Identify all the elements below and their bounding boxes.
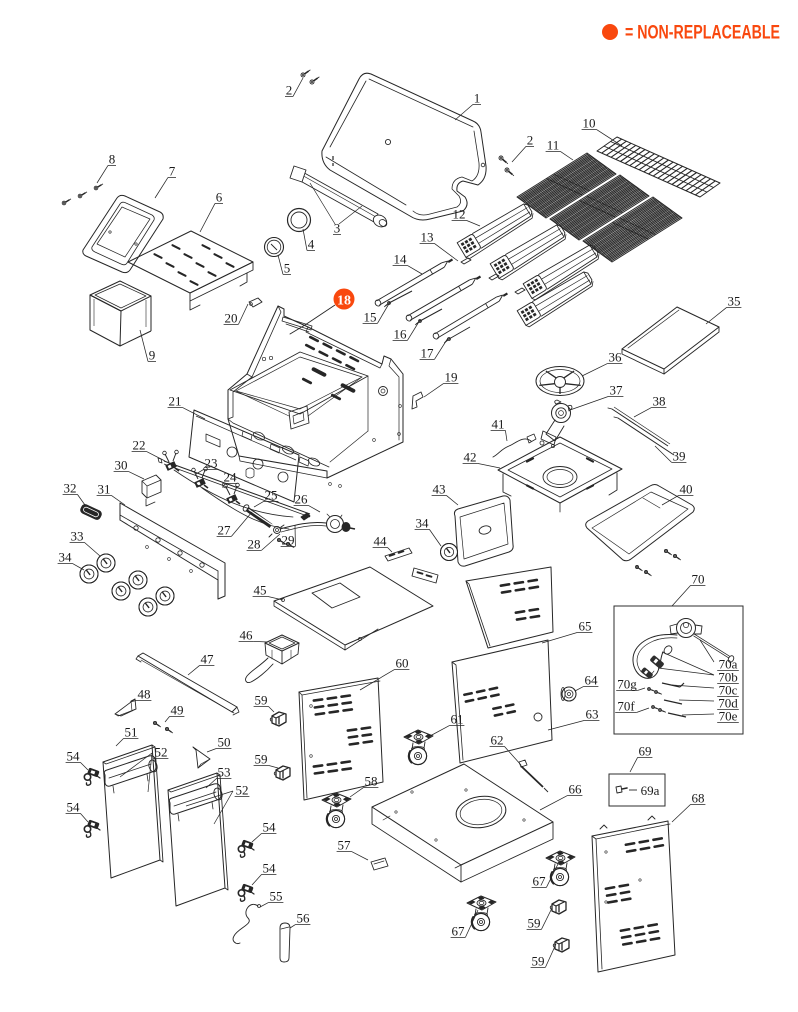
svg-text:4: 4 (308, 237, 315, 252)
svg-text:41: 41 (492, 417, 505, 432)
svg-text:34: 34 (59, 550, 73, 565)
svg-text:38: 38 (653, 394, 666, 409)
svg-text:34: 34 (416, 516, 430, 531)
svg-text:23: 23 (205, 456, 218, 471)
svg-text:59: 59 (528, 916, 541, 931)
svg-text:70f: 70f (617, 699, 635, 714)
svg-text:52: 52 (236, 783, 249, 798)
svg-text:17: 17 (421, 346, 435, 361)
svg-text:64: 64 (585, 673, 599, 688)
svg-text:67: 67 (533, 874, 547, 889)
svg-text:59: 59 (255, 752, 268, 767)
svg-text:32: 32 (64, 481, 77, 496)
svg-text:63: 63 (586, 707, 599, 722)
svg-text:57: 57 (338, 838, 352, 853)
svg-text:5: 5 (284, 261, 291, 276)
svg-text:66: 66 (569, 782, 583, 797)
svg-text:59: 59 (255, 693, 268, 708)
svg-text:58: 58 (365, 774, 378, 789)
svg-text:19: 19 (445, 370, 458, 385)
svg-text:53: 53 (218, 765, 231, 780)
svg-text:59: 59 (532, 954, 545, 969)
svg-text:50: 50 (218, 735, 231, 750)
svg-text:70: 70 (692, 572, 705, 587)
svg-text:24: 24 (224, 470, 238, 485)
svg-text:3: 3 (334, 221, 341, 236)
svg-text:70g: 70g (617, 677, 637, 692)
svg-text:11: 11 (547, 138, 560, 153)
svg-text:55: 55 (270, 889, 283, 904)
svg-text:36: 36 (609, 350, 623, 365)
svg-text:21: 21 (169, 394, 182, 409)
svg-text:52: 52 (155, 745, 168, 760)
svg-text:69a: 69a (641, 783, 660, 798)
svg-text:9: 9 (149, 348, 156, 363)
svg-text:47: 47 (201, 652, 215, 667)
svg-text:48: 48 (138, 687, 151, 702)
svg-text:26: 26 (295, 492, 309, 507)
svg-text:8: 8 (109, 152, 116, 167)
svg-text:61: 61 (451, 712, 464, 727)
svg-text:65: 65 (579, 619, 592, 634)
svg-text:18: 18 (337, 294, 351, 309)
svg-text:45: 45 (254, 583, 267, 598)
svg-text:27: 27 (218, 523, 232, 538)
svg-text:2: 2 (527, 133, 534, 148)
svg-text:22: 22 (133, 438, 146, 453)
svg-text:62: 62 (491, 733, 504, 748)
svg-text:33: 33 (71, 529, 84, 544)
svg-text:13: 13 (421, 230, 434, 245)
svg-text:54: 54 (263, 820, 277, 835)
svg-text:40: 40 (680, 482, 693, 497)
svg-text:35: 35 (728, 294, 741, 309)
svg-text:20: 20 (225, 311, 238, 326)
svg-text:67: 67 (452, 924, 466, 939)
svg-text:56: 56 (297, 911, 311, 926)
svg-text:68: 68 (692, 791, 705, 806)
svg-text:12: 12 (453, 207, 466, 222)
svg-text:28: 28 (248, 537, 261, 552)
svg-text:25: 25 (265, 488, 278, 503)
svg-text:46: 46 (240, 628, 254, 643)
svg-text:37: 37 (610, 383, 624, 398)
svg-text:42: 42 (464, 450, 477, 465)
svg-text:60: 60 (396, 656, 409, 671)
svg-text:14: 14 (394, 252, 408, 267)
svg-text:16: 16 (394, 327, 408, 342)
svg-text:54: 54 (67, 749, 81, 764)
svg-text:6: 6 (216, 190, 223, 205)
svg-text:2: 2 (286, 83, 293, 98)
svg-text:69: 69 (639, 744, 652, 759)
svg-text:49: 49 (171, 703, 184, 718)
svg-text:54: 54 (263, 861, 277, 876)
svg-text:15: 15 (364, 310, 377, 325)
svg-text:= NON-REPLACEABLE: = NON-REPLACEABLE (625, 23, 780, 44)
svg-text:70e: 70e (719, 709, 738, 724)
svg-text:31: 31 (98, 482, 111, 497)
svg-text:30: 30 (115, 458, 128, 473)
svg-text:43: 43 (433, 482, 446, 497)
svg-text:10: 10 (583, 116, 596, 131)
svg-text:39: 39 (673, 449, 686, 464)
svg-text:51: 51 (125, 725, 138, 740)
svg-text:29: 29 (282, 533, 295, 548)
svg-text:44: 44 (374, 534, 388, 549)
svg-text:7: 7 (169, 164, 176, 179)
svg-text:1: 1 (474, 91, 481, 106)
svg-text:54: 54 (67, 800, 81, 815)
